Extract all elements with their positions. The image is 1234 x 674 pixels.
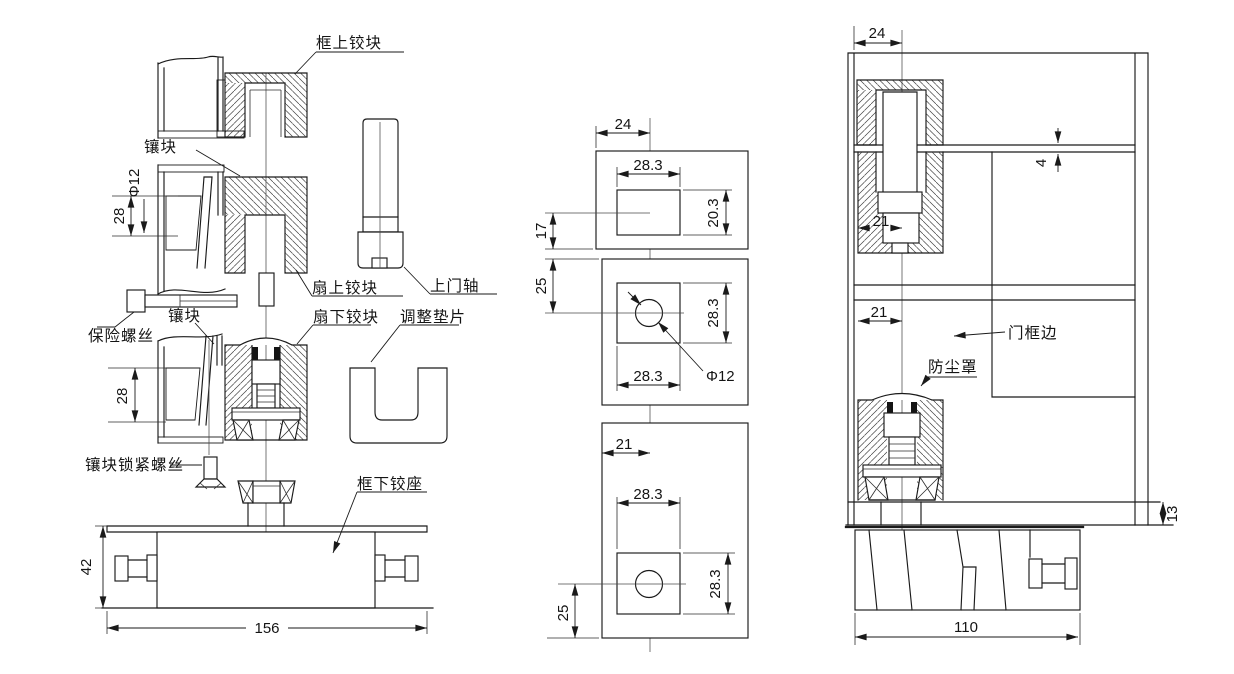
left-exploded-view: 28 Φ12 28 42 156 框上铰块 镶块 扇上铰块 上门轴	[78, 34, 497, 637]
label-leaf-top-hinge-block: 扇上铰块	[312, 279, 378, 297]
dim-156: 156	[254, 620, 279, 637]
label-safety-screw: 保险螺丝	[88, 327, 154, 345]
dim-203: 20.3	[705, 198, 722, 227]
label-frame-bottom-hinge-seat: 框下铰座	[357, 475, 423, 493]
dim-110: 110	[954, 619, 978, 636]
frame-channel-bottom	[158, 334, 223, 443]
right-dim-4: 4	[1033, 128, 1058, 172]
plan-top-block: 24 28.3 20.3 17	[533, 116, 748, 249]
dim-283-bot-top: 28.3	[633, 486, 662, 503]
frame-top-hinge-block	[217, 73, 307, 137]
dim-21-right-lower: 21	[871, 304, 888, 321]
right-dim-13: 13	[1163, 502, 1181, 525]
dim-phi12-mid: Φ12	[706, 368, 735, 385]
top-door-axle-part	[358, 119, 403, 268]
dim-283-mid-bottom: 28.3	[633, 368, 662, 385]
dim-283-mid-right: 28.3	[705, 298, 722, 327]
dim-24-middle: 24	[615, 116, 632, 133]
label-insert-block-upper: 镶块	[144, 137, 177, 156]
right-view-labels: 门框边 防尘罩 21	[858, 304, 1058, 386]
label-top-door-axle: 上门轴	[430, 277, 480, 295]
dim-25-mid: 25	[533, 278, 550, 295]
label-adjustment-shim: 调整垫片	[400, 308, 466, 326]
dim-25-bottom: 25	[555, 605, 572, 622]
label-leaf-bottom-hinge-block: 扇下铰块	[313, 308, 379, 326]
right-dim-24: 24	[854, 25, 902, 50]
dim-17: 17	[533, 223, 550, 240]
label-insert-lock-screw: 镶块锁紧螺丝	[85, 455, 184, 474]
adjustment-shim-part	[350, 368, 447, 443]
plan-mid-block: 25 28.3 28.3 Φ12	[533, 259, 748, 405]
dim-21-right-upper: 21	[873, 213, 890, 230]
technical-drawing-page: 28 Φ12 28 42 156 框上铰块 镶块 扇上铰块 上门轴	[0, 0, 1234, 674]
dim-phi12-left: Φ12	[126, 169, 143, 198]
dim-283-top: 28.3	[633, 157, 662, 174]
insert-block-upper	[166, 177, 212, 268]
label-door-frame-edge: 门框边	[1008, 324, 1058, 342]
dim-13: 13	[1164, 506, 1181, 523]
dim-42: 42	[78, 559, 95, 576]
drawing-canvas: 28 Φ12 28 42 156 框上铰块 镶块 扇上铰块 上门轴	[0, 0, 1234, 674]
dim-28-lower: 28	[114, 388, 131, 405]
plan-bottom-block: 21 28.3 28.3 25	[547, 423, 748, 638]
insert-lock-screw-part	[196, 457, 225, 489]
right-leaf-bottom-hinge-block	[858, 394, 943, 526]
dim-28-upper: 28	[111, 208, 128, 225]
middle-plan-views: 24 28.3 20.3 17 25 28.3 28.3	[533, 116, 748, 652]
label-frame-top-hinge-block: 框上铰块	[316, 34, 382, 52]
label-dust-cover: 防尘罩	[928, 358, 978, 376]
pivot-nut	[238, 481, 295, 526]
dim-21-middle: 21	[616, 436, 633, 453]
right-floor-box: 110	[846, 527, 1083, 645]
right-section-view: 21 24 4 门框边 防尘罩 21	[846, 25, 1181, 645]
dim-4: 4	[1033, 159, 1050, 167]
dim-283-bot-right: 28.3	[707, 569, 724, 598]
frame-channel-middle	[158, 165, 225, 296]
label-insert-block-lower: 镶块	[168, 306, 201, 325]
dim-24-right: 24	[869, 25, 886, 42]
frame-bottom-hinge-seat	[102, 526, 433, 608]
